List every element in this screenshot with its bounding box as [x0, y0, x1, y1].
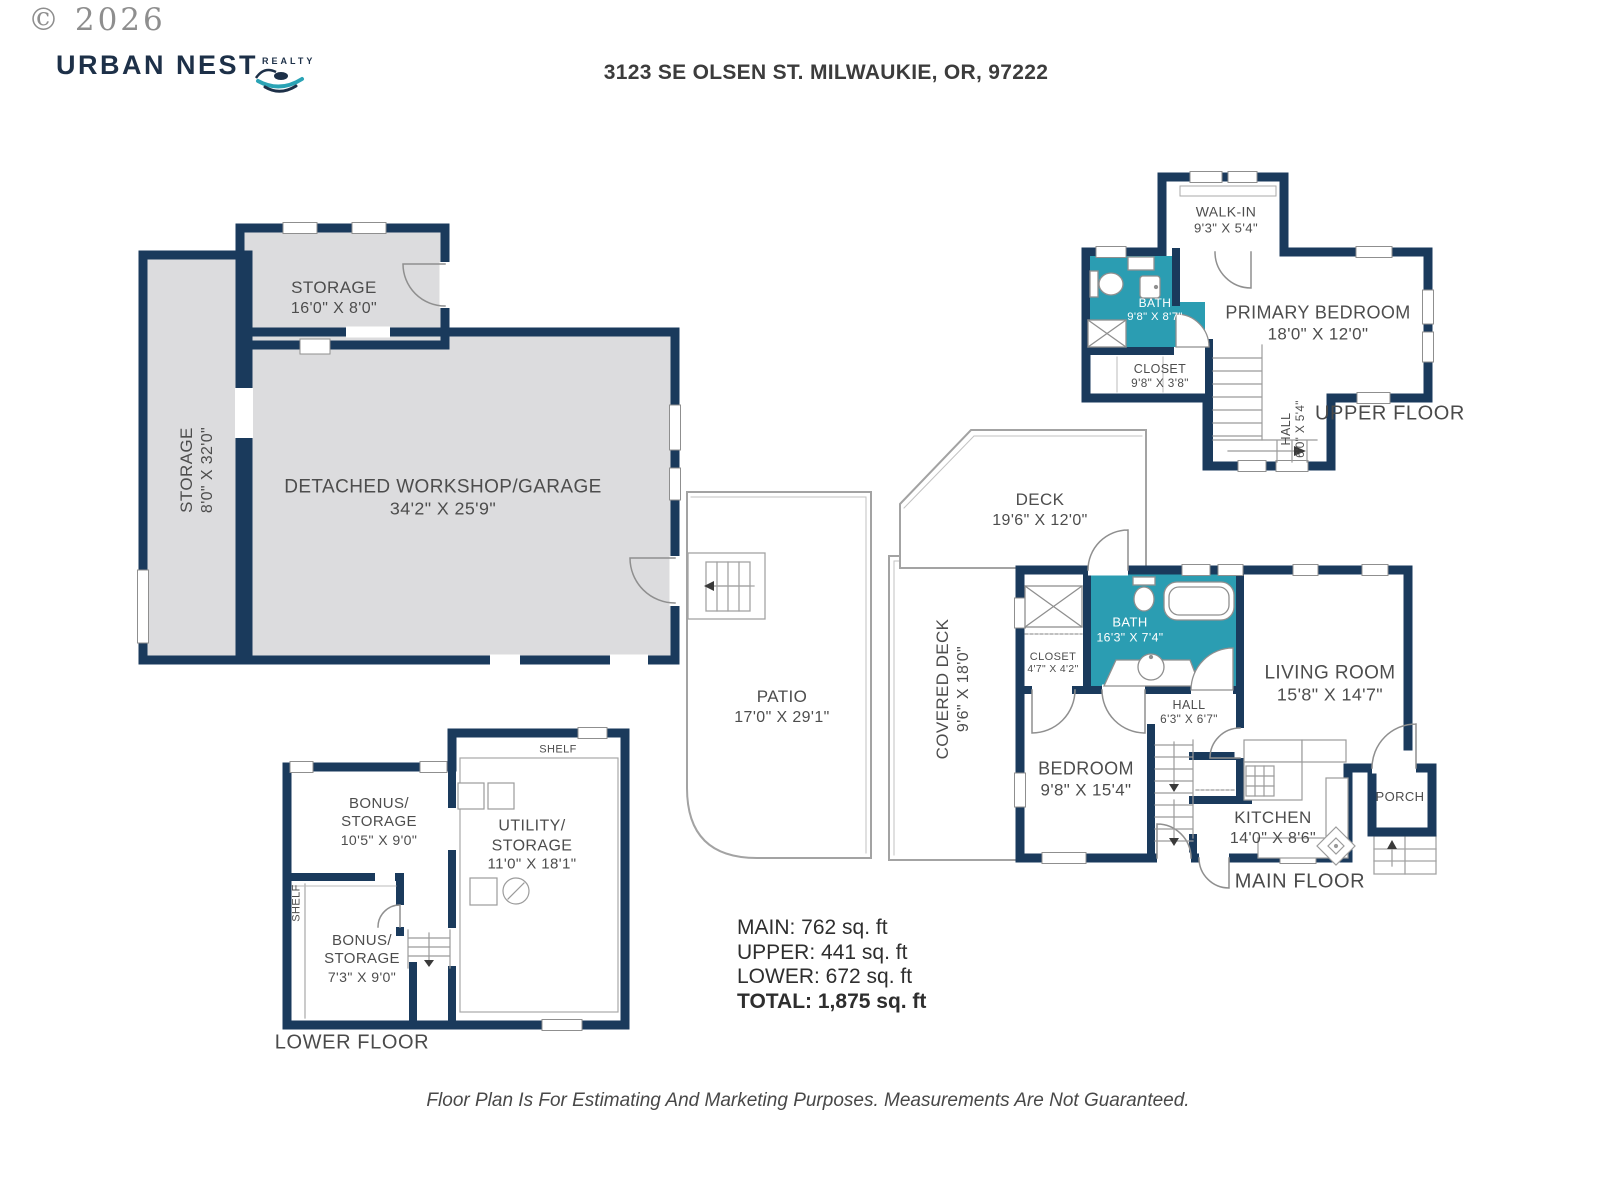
room-label-workshop-garage: DETACHED WORKSHOP/GARAGE 34'2" X 25'9" — [284, 476, 602, 521]
stove-icon — [1246, 766, 1274, 796]
window — [1423, 290, 1434, 324]
room-label-main-bedroom: BEDROOM 9'8" X 15'4" — [1038, 759, 1134, 802]
window — [1042, 853, 1086, 864]
vanity-cabinet — [1128, 257, 1154, 270]
square-footage-summary: MAIN: 762 sq. ft UPPER: 441 sq. ft LOWER… — [737, 916, 926, 1014]
room-dims: 34'2" X 25'9" — [284, 499, 602, 521]
room-label-garage-storage-left: STORAGE 8'0" X 32'0" — [177, 427, 217, 513]
appliance-box — [488, 783, 514, 809]
appliance-box — [470, 878, 497, 905]
window — [352, 223, 386, 234]
window — [138, 570, 149, 643]
room-label-upper-hall: HALL 6'0" X 5'4" — [1279, 400, 1309, 458]
toilet-icon — [1133, 577, 1155, 611]
room-dims: 17'0" X 29'1" — [734, 708, 829, 728]
room-name: STORAGE — [291, 278, 377, 299]
window — [1096, 247, 1126, 258]
room-label-covered-deck: COVERED DECK 9'6" X 18'0" — [933, 619, 973, 760]
sink-icon — [1140, 276, 1160, 298]
window — [1015, 773, 1026, 807]
summary-total: TOTAL: 1,875 sq. ft — [737, 990, 926, 1015]
room-label-patio: PATIO 17'0" X 29'1" — [734, 687, 829, 727]
room-label-main-closet: CLOSET 4'7" X 4'2" — [1027, 651, 1078, 677]
room-dims: 9'6" X 18'0" — [954, 619, 974, 760]
tub-icon — [1164, 582, 1234, 620]
summary-main: MAIN: 762 sq. ft — [737, 916, 926, 941]
room-dims: 15'8" X 14'7" — [1264, 685, 1395, 707]
room-dims: 8'0" X 32'0" — [198, 427, 218, 513]
room-dims: 10'5" X 9'0" — [341, 832, 418, 849]
room-name: STORAGE — [487, 836, 576, 856]
shelf-label-top: SHELF — [539, 743, 576, 756]
counter — [1244, 740, 1302, 762]
room-name: STORAGE — [324, 950, 400, 968]
room-name: STORAGE — [177, 427, 198, 513]
room-name: HALL — [1279, 400, 1294, 458]
room-label-walk-in: WALK-IN 9'3" X 5'4" — [1194, 203, 1258, 236]
room-dims: 9'3" X 5'4" — [1194, 221, 1258, 237]
room-dims: 14'0" X 8'6" — [1230, 829, 1316, 849]
window — [1423, 332, 1434, 362]
summary-upper: UPPER: 441 sq. ft — [737, 941, 926, 966]
room-name: BATH — [1127, 296, 1183, 311]
room-label-living-room: LIVING ROOM 15'8" X 14'7" — [1264, 662, 1395, 707]
room-name: CLOSET — [1027, 651, 1078, 664]
room-dims: 9'8" X 8'7" — [1127, 310, 1183, 324]
window — [1218, 565, 1243, 576]
room-dims: 6'0" X 5'4" — [1294, 400, 1308, 458]
room-dims: 16'0" X 8'0" — [291, 299, 377, 319]
window — [1356, 247, 1392, 258]
window — [283, 223, 317, 234]
window — [670, 405, 681, 450]
room-dims: 16'3" X 7'4" — [1096, 630, 1163, 645]
vent-box — [300, 339, 330, 354]
room-label-porch: PORCH — [1376, 789, 1425, 805]
patio-outline — [687, 492, 871, 858]
room-name: SHELF — [539, 743, 576, 756]
room-name: PORCH — [1376, 789, 1425, 805]
lower-floor-label: LOWER FLOOR — [275, 1032, 429, 1055]
window — [420, 762, 447, 773]
room-name: BEDROOM — [1038, 759, 1134, 781]
shower-icon — [1088, 320, 1126, 347]
room-label-utility-storage: UTILITY/ STORAGE 11'0" X 18'1" — [487, 816, 576, 873]
room-label-primary-bedroom: PRIMARY BEDROOM 18'0" X 12'0" — [1225, 303, 1410, 346]
room-name: STORAGE — [341, 813, 418, 831]
main-floor-plan — [1015, 530, 1433, 888]
window — [1238, 461, 1266, 472]
summary-lower: LOWER: 672 sq. ft — [737, 965, 926, 990]
room-name: COVERED DECK — [933, 619, 954, 760]
shelf-label-left: SHELF — [290, 884, 303, 921]
room-dims: 9'8" X 15'4" — [1038, 781, 1134, 802]
room-name: CLOSET — [1131, 362, 1189, 377]
room-label-garage-storage-top: STORAGE 16'0" X 8'0" — [291, 278, 377, 318]
window — [1015, 598, 1026, 628]
window — [1228, 172, 1257, 183]
brand-name: URBAN NEST — [56, 50, 258, 81]
window — [578, 728, 607, 739]
toilet-icon — [1090, 271, 1123, 297]
window — [670, 468, 681, 500]
room-label-bonus-storage-2: BONUS/ STORAGE 7'3" X 9'0" — [324, 932, 400, 986]
room-name: LIVING ROOM — [1264, 662, 1395, 685]
main-floor-label: MAIN FLOOR — [1235, 871, 1365, 894]
nest-icon — [254, 62, 306, 96]
room-label-upper-closet: CLOSET 9'8" X 3'8" — [1131, 362, 1189, 392]
room-dims: 6'3" X 6'7" — [1160, 713, 1218, 727]
room-name: PRIMARY BEDROOM — [1225, 303, 1410, 325]
room-name: UTILITY/ — [487, 816, 576, 836]
room-dims: 4'7" X 4'2" — [1027, 664, 1078, 677]
counter — [1302, 740, 1346, 762]
room-label-deck: DECK 19'6" X 12'0" — [992, 490, 1087, 530]
room-name: KITCHEN — [1230, 808, 1316, 829]
room-name: BATH — [1096, 615, 1163, 631]
disclaimer-text: Floor Plan Is For Estimating And Marketi… — [426, 1090, 1189, 1112]
window — [1190, 172, 1222, 183]
upper-floor-label: UPPER FLOOR — [1315, 403, 1465, 426]
room-name: BONUS/ — [341, 795, 418, 813]
room-label-bonus-storage-1: BONUS/ STORAGE 10'5" X 9'0" — [341, 795, 418, 849]
window — [290, 762, 313, 773]
shower-icon — [1025, 586, 1082, 627]
watermark-copyright: © 2026 — [28, 2, 166, 38]
room-name: DECK — [992, 490, 1087, 511]
window — [1362, 565, 1388, 576]
appliance-box — [458, 783, 484, 809]
room-name: DETACHED WORKSHOP/GARAGE — [284, 476, 602, 499]
patio-steps — [688, 553, 765, 619]
window — [1293, 565, 1318, 576]
room-name: BONUS/ — [324, 932, 400, 950]
room-name: HALL — [1160, 698, 1218, 713]
room-dims: 9'8" X 3'8" — [1131, 377, 1189, 391]
room-dims: 19'6" X 12'0" — [992, 511, 1087, 531]
water-heater-icon — [503, 878, 529, 904]
room-label-main-hall: HALL 6'3" X 6'7" — [1160, 698, 1218, 728]
room-label-main-bath: BATH 16'3" X 7'4" — [1096, 615, 1163, 646]
window — [1182, 565, 1210, 576]
door-gap — [1213, 247, 1253, 258]
room-name: WALK-IN — [1194, 203, 1258, 220]
room-name: PATIO — [734, 687, 829, 708]
room-dims: 18'0" X 12'0" — [1225, 325, 1410, 346]
room-dims: 11'0" X 18'1" — [487, 855, 576, 873]
room-dims: 7'3" X 9'0" — [324, 969, 400, 986]
room-name: SHELF — [290, 884, 303, 921]
window — [542, 1020, 582, 1031]
room-label-kitchen: KITCHEN 14'0" X 8'6" — [1230, 808, 1316, 848]
room-label-upper-bath: BATH 9'8" X 8'7" — [1127, 296, 1183, 324]
garage-building — [138, 223, 681, 666]
floor-plan-canvas — [0, 0, 1600, 1200]
floor-plan-page: © 2026 URBAN NEST REALTY 3123 SE OLSEN S… — [0, 0, 1600, 1200]
porch-steps — [1374, 836, 1436, 874]
property-address: 3123 SE OLSEN ST. MILWAUKIE, OR, 97222 — [604, 61, 1048, 85]
